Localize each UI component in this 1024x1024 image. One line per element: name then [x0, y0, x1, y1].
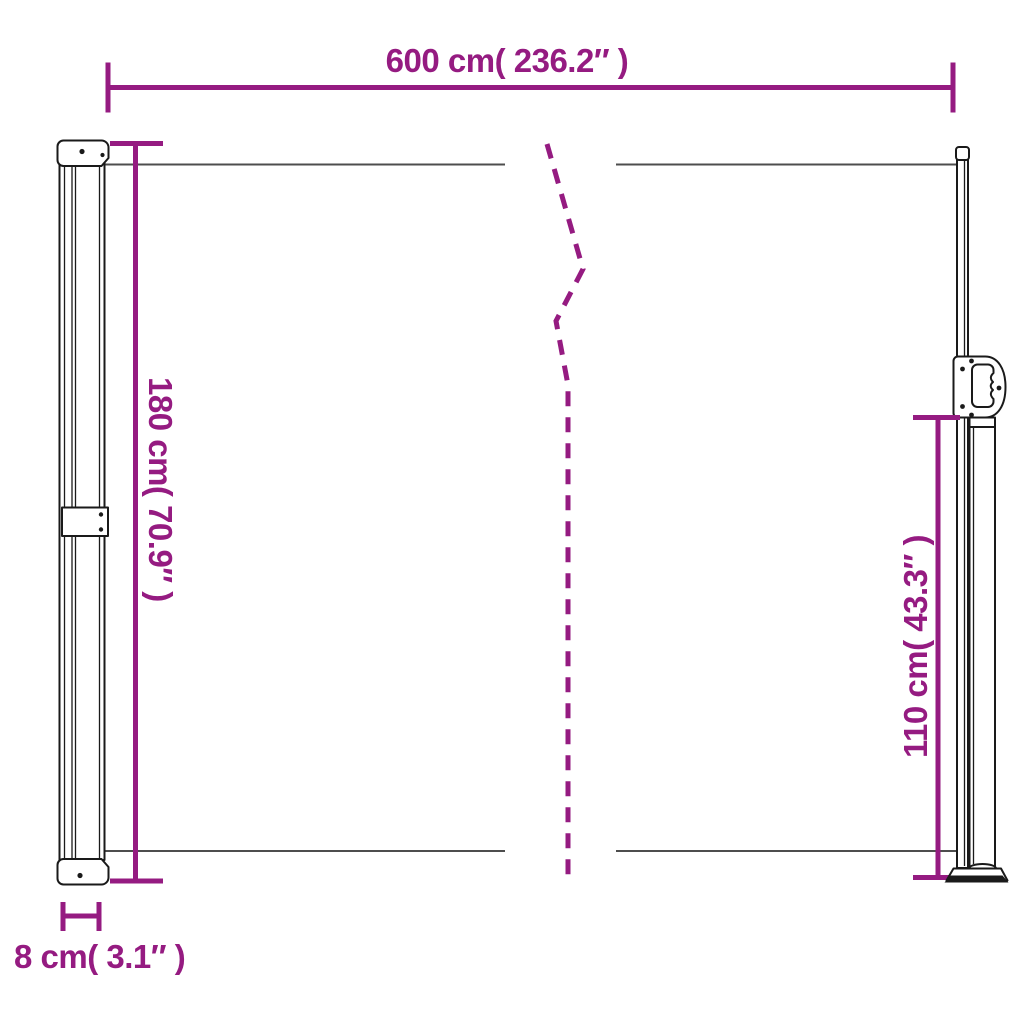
screw-dot: [99, 512, 103, 516]
fabric-panel-lines: [105, 165, 958, 852]
pole-upper-rail: [957, 158, 968, 868]
screw-dot: [99, 527, 103, 531]
screw-dot: [969, 413, 974, 418]
screw-dot: [100, 153, 104, 157]
screw-dot: [77, 873, 82, 878]
screw-dot: [960, 367, 965, 372]
pole-top-cap: [956, 147, 969, 160]
wall-bracket: [62, 508, 108, 537]
pole-base-foot: [945, 876, 1009, 883]
break-line: [547, 144, 583, 879]
screw-dot: [969, 359, 974, 364]
depth-dimension: [63, 902, 99, 931]
product-dimension-diagram: 600 cm( 236.2″ ) 180 cm( 70.9″ ) 110 cm(…: [0, 0, 1024, 1024]
cassette-post: [58, 141, 109, 885]
right-height-label: 110 cm( 43.3″ ): [899, 535, 932, 758]
front-pole: [913, 147, 1009, 883]
screw-dot: [997, 386, 1002, 391]
screw-dot: [960, 404, 965, 409]
cassette-depth-label: 8 cm( 3.1″ ): [14, 940, 185, 973]
cassette-bottom-cap: [58, 859, 109, 885]
left-height-label: 180 cm( 70.9″ ): [144, 377, 177, 602]
top-width-label: 600 cm( 236.2″ ): [307, 44, 707, 77]
screw-dot: [79, 149, 84, 154]
